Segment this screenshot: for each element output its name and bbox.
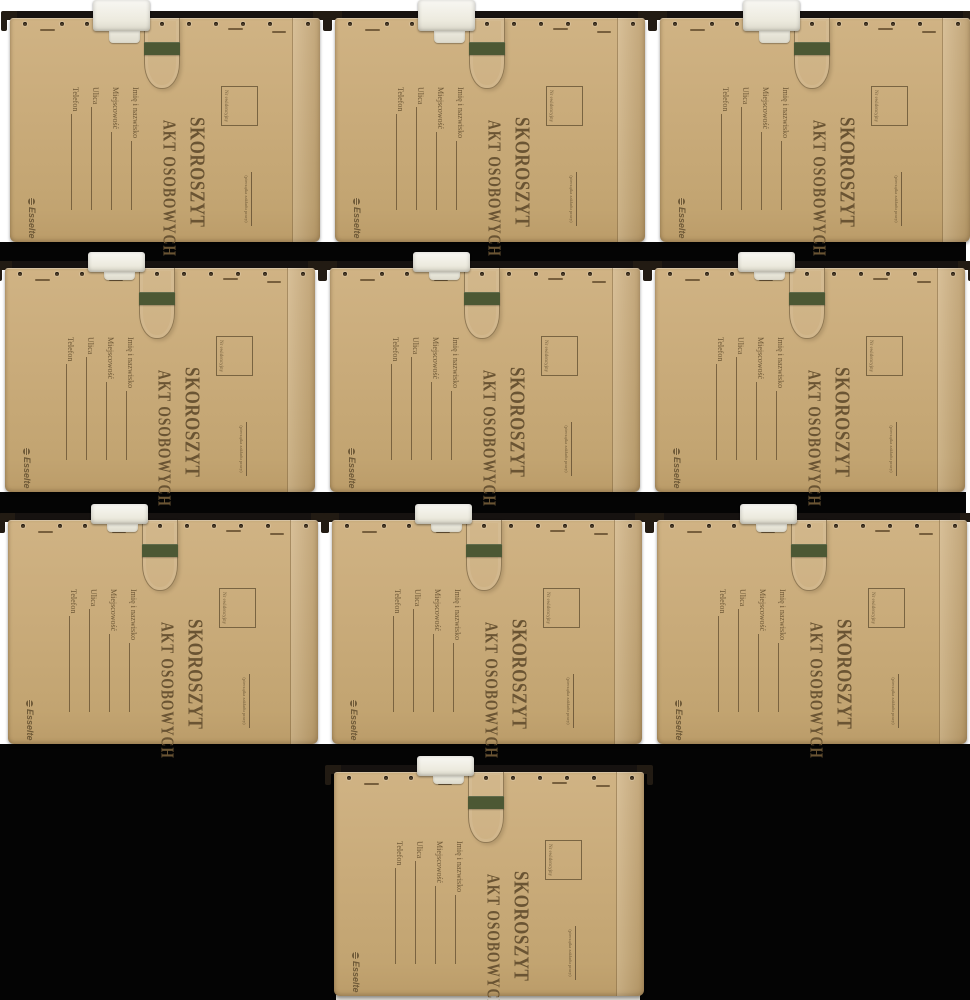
- rivet: [182, 272, 186, 276]
- brand-logo: Esselte: [27, 198, 37, 239]
- brand-logo: Esselte: [22, 448, 32, 489]
- form-field-label: Miejscowość: [435, 87, 445, 129]
- rivet: [834, 524, 838, 528]
- brand-logo: Esselte: [352, 198, 362, 239]
- product-collage: Nr ewidencyjny (pieczątka zakładu pracy)…: [0, 0, 970, 1000]
- rivet: [888, 524, 892, 528]
- rivet: [730, 272, 734, 276]
- form-field-label: Imię i nazwisko: [775, 337, 785, 388]
- form-field-label: Imię i nazwisko: [777, 589, 787, 640]
- rivet: [409, 776, 413, 780]
- form-field-label: Miejscowość: [105, 337, 115, 379]
- form-field-line: [69, 616, 71, 712]
- hanger-clip-tab: [434, 31, 465, 43]
- rivet: [214, 22, 218, 26]
- form-field-row: Imię i nazwisko: [775, 337, 787, 460]
- esselte-ball-icon: [351, 700, 358, 707]
- slit-mark: [40, 29, 55, 31]
- rivet: [212, 524, 216, 528]
- hanger-clip-tab: [431, 524, 462, 532]
- hanger-clip-tab: [433, 776, 464, 784]
- rivet: [187, 22, 191, 26]
- form-field-row: Telefon: [390, 337, 402, 460]
- form-field-row: Telefon: [395, 87, 407, 210]
- folder-body: Nr ewidencyjny (pieczątka zakładu pracy)…: [660, 18, 970, 242]
- hanging-folder: Nr ewidencyjny (pieczątka zakładu pracy)…: [10, 0, 320, 244]
- slit-mark: [267, 281, 281, 283]
- brand-logo: Esselte: [674, 700, 684, 741]
- hanger-clip: [415, 504, 472, 524]
- form-field-line: [431, 382, 433, 460]
- form-field-row: Miejscowość: [435, 87, 447, 210]
- form-field-label: Telefon: [720, 87, 730, 111]
- form-field-row: Imię i nazwisko: [780, 87, 792, 210]
- form-field-label: Telefon: [392, 589, 402, 613]
- printed-face: Nr ewidencyjny (pieczątka zakładu pracy)…: [330, 268, 640, 492]
- form-field-label: Imię i nazwisko: [130, 87, 140, 138]
- rivet: [538, 776, 542, 780]
- brand-logo: Esselte: [672, 448, 682, 489]
- form-field-row: Ulica: [735, 337, 747, 460]
- hanger-clip-tab: [109, 31, 140, 43]
- form-field-line: [396, 114, 398, 210]
- form-field-label: Ulica: [88, 589, 98, 606]
- rivet: [915, 524, 919, 528]
- hanger-clip-tab: [104, 272, 135, 280]
- form-field-row: Ulica: [88, 589, 100, 712]
- rivet: [18, 272, 22, 276]
- folder-body: Nr ewidencyjny (pieczątka zakładu pracy)…: [5, 268, 315, 492]
- hanger-clip-tab: [429, 272, 460, 280]
- form-field-label: Miejscowość: [757, 589, 767, 631]
- printed-face: Nr ewidencyjny (pieczątka zakładu pracy)…: [655, 268, 965, 492]
- form-field-line: [778, 643, 780, 712]
- rivet: [239, 524, 243, 528]
- form-field-label: Telefon: [390, 337, 400, 361]
- form-fields: Imię i nazwiskoMiejscowośćUlicaTelefon: [332, 520, 642, 744]
- form-field-label: Miejscowość: [755, 337, 765, 379]
- form-field-label: Ulica: [737, 589, 747, 606]
- hanger-clip: [88, 252, 145, 272]
- form-field-line: [393, 616, 395, 712]
- form-field-line: [761, 132, 763, 210]
- hanging-folder: Nr ewidencyjny (pieczątka zakładu pracy)…: [330, 250, 640, 494]
- form-field-line: [455, 895, 457, 964]
- rivet: [407, 524, 411, 528]
- form-field-row: Ulica: [740, 87, 752, 210]
- brand-name: Esselte: [25, 709, 35, 741]
- rivet: [345, 524, 349, 528]
- form-field-label: Telefon: [68, 589, 78, 613]
- slit-mark: [272, 31, 286, 33]
- folder-body: Nr ewidencyjny (pieczątka zakładu pracy)…: [8, 520, 318, 744]
- form-fields: Imię i nazwiskoMiejscowośćUlicaTelefon: [334, 772, 644, 996]
- rivet: [886, 272, 890, 276]
- rivet: [590, 524, 594, 528]
- rivet: [55, 272, 59, 276]
- form-field-row: Ulica: [415, 87, 427, 210]
- hanger-clip: [740, 504, 797, 524]
- rivet: [861, 524, 865, 528]
- form-field-label: Imię i nazwisko: [454, 841, 464, 892]
- rivet: [673, 22, 677, 26]
- folder-body: Nr ewidencyjny (pieczątka zakładu pracy)…: [657, 520, 967, 744]
- brand-logo: Esselte: [351, 952, 361, 993]
- form-fields: Imię i nazwiskoMiejscowośćUlicaTelefon: [5, 268, 315, 492]
- rivet: [382, 524, 386, 528]
- rivet: [859, 272, 863, 276]
- form-field-label: Miejscowość: [430, 337, 440, 379]
- form-field-row: Ulica: [737, 589, 749, 712]
- form-field-label: Telefon: [70, 87, 80, 111]
- form-field-row: Miejscowość: [430, 337, 442, 460]
- form-fields: Imię i nazwiskoMiejscowośćUlicaTelefon: [330, 268, 640, 492]
- slit-mark: [270, 533, 284, 535]
- esselte-ball-icon: [29, 198, 36, 205]
- rivet: [951, 272, 955, 276]
- form-field-line: [756, 382, 758, 460]
- rivet: [480, 272, 484, 276]
- form-field-line: [129, 643, 131, 712]
- slit-mark: [35, 279, 50, 281]
- hanger-clip-tab: [754, 272, 785, 280]
- rivet: [266, 524, 270, 528]
- rivet: [482, 524, 486, 528]
- form-field-line: [776, 391, 778, 460]
- esselte-ball-icon: [679, 198, 686, 205]
- form-field-row: Imię i nazwisko: [452, 589, 464, 712]
- rivet: [507, 272, 511, 276]
- form-field-label: Ulica: [735, 337, 745, 354]
- slit-mark: [917, 281, 931, 283]
- esselte-ball-icon: [674, 448, 681, 455]
- rivet: [236, 272, 240, 276]
- hanging-folder: Nr ewidencyjny (pieczątka zakładu pracy)…: [334, 754, 644, 998]
- form-fields: Imię i nazwiskoMiejscowośćUlicaTelefon: [655, 268, 965, 492]
- form-field-line: [111, 132, 113, 210]
- form-field-row: Ulica: [412, 589, 424, 712]
- brand-name: Esselte: [27, 207, 37, 239]
- form-field-line: [86, 357, 88, 460]
- form-field-row: Miejscowość: [757, 589, 769, 712]
- form-field-row: Telefon: [394, 841, 406, 964]
- slit-mark: [919, 533, 933, 535]
- hanger-clip: [93, 0, 150, 31]
- form-field-label: Ulica: [410, 337, 420, 354]
- rivet: [410, 22, 414, 26]
- rivet: [563, 524, 567, 528]
- rivet: [384, 776, 388, 780]
- form-field-row: Telefon: [65, 337, 77, 460]
- slit-mark: [553, 28, 568, 30]
- printed-face: Nr ewidencyjny (pieczątka zakładu pracy)…: [334, 772, 644, 996]
- form-field-line: [741, 107, 743, 210]
- form-field-label: Miejscowość: [108, 589, 118, 631]
- form-field-row: Imię i nazwisko: [130, 87, 142, 210]
- esselte-ball-icon: [354, 198, 361, 205]
- printed-face: Nr ewidencyjny (pieczątka zakładu pracy)…: [10, 18, 320, 242]
- form-field-line: [738, 609, 740, 712]
- rivet: [85, 22, 89, 26]
- form-field-row: Miejscowość: [108, 589, 120, 712]
- rivet: [60, 22, 64, 26]
- esselte-ball-icon: [27, 700, 34, 707]
- form-field-line: [758, 634, 760, 712]
- slit-mark: [552, 782, 567, 784]
- rivet: [155, 272, 159, 276]
- form-field-row: Miejscowość: [110, 87, 122, 210]
- rivet: [509, 524, 513, 528]
- brand-name: Esselte: [677, 207, 687, 239]
- rivet: [566, 22, 570, 26]
- hanger-clip: [738, 252, 795, 272]
- slit-mark: [875, 530, 890, 532]
- rivet: [268, 22, 272, 26]
- hanger-clip-tab: [759, 31, 790, 43]
- form-field-row: Imię i nazwisko: [777, 589, 789, 712]
- hanging-folder: Nr ewidencyjny (pieczątka zakładu pracy)…: [655, 250, 965, 494]
- rivet: [805, 272, 809, 276]
- rivet: [588, 272, 592, 276]
- form-field-line: [453, 643, 455, 712]
- form-field-label: Ulica: [90, 87, 100, 104]
- form-field-line: [451, 391, 453, 460]
- form-field-row: Miejscowość: [434, 841, 446, 964]
- hanger-clip: [413, 252, 470, 272]
- rivet: [343, 272, 347, 276]
- form-fields: Imię i nazwiskoMiejscowośćUlicaTelefon: [8, 520, 318, 744]
- slit-mark: [594, 533, 608, 535]
- form-field-line: [71, 114, 73, 210]
- rivet: [592, 776, 596, 780]
- form-field-line: [391, 364, 393, 460]
- hanging-folder: Nr ewidencyjny (pieczątka zakładu pracy)…: [5, 250, 315, 494]
- form-field-row: Miejscowość: [432, 589, 444, 712]
- rivet: [209, 272, 213, 276]
- folder-body: Nr ewidencyjny (pieczątka zakładu pracy)…: [332, 520, 642, 744]
- form-field-row: Imię i nazwisko: [128, 589, 140, 712]
- rivet: [561, 272, 565, 276]
- folder-body: Nr ewidencyjny (pieczątka zakładu pracy)…: [335, 18, 645, 242]
- form-field-label: Telefon: [395, 87, 405, 111]
- form-field-line: [721, 114, 723, 210]
- rivet: [807, 524, 811, 528]
- brand-name: Esselte: [351, 961, 361, 993]
- folder-body: Nr ewidencyjny (pieczątka zakładu pracy)…: [334, 772, 644, 996]
- rivet: [626, 272, 630, 276]
- rivet: [953, 524, 957, 528]
- rivet: [185, 524, 189, 528]
- slit-mark: [685, 279, 700, 281]
- slit-mark: [226, 530, 241, 532]
- form-field-row: Ulica: [85, 337, 97, 460]
- slit-mark: [38, 531, 53, 533]
- form-field-row: Ulica: [90, 87, 102, 210]
- form-field-row: Miejscowość: [760, 87, 772, 210]
- form-field-label: Telefon: [717, 589, 727, 613]
- folder-body: Nr ewidencyjny (pieczątka zakładu pracy)…: [655, 268, 965, 492]
- rivet: [668, 272, 672, 276]
- hanger-clip: [417, 756, 474, 776]
- form-field-row: Miejscowość: [755, 337, 767, 460]
- rivet: [241, 22, 245, 26]
- esselte-ball-icon: [349, 448, 356, 455]
- hanger-clip-tab: [756, 524, 787, 532]
- form-field-label: Telefon: [394, 841, 404, 865]
- brand-logo: Esselte: [677, 198, 687, 239]
- rivet: [301, 272, 305, 276]
- rivet: [891, 22, 895, 26]
- form-field-row: Miejscowość: [105, 337, 117, 460]
- form-field-line: [91, 107, 93, 210]
- rivet: [956, 22, 960, 26]
- hanger-clip: [418, 0, 475, 31]
- rivet: [732, 524, 736, 528]
- slit-mark: [550, 530, 565, 532]
- rivet: [710, 22, 714, 26]
- form-field-row: Imię i nazwisko: [125, 337, 137, 460]
- form-field-line: [456, 141, 458, 210]
- form-field-label: Telefon: [65, 337, 75, 361]
- rivet: [735, 22, 739, 26]
- esselte-ball-icon: [24, 448, 31, 455]
- form-field-row: Telefon: [717, 589, 729, 712]
- printed-face: Nr ewidencyjny (pieczątka zakładu pracy)…: [660, 18, 970, 242]
- brand-name: Esselte: [352, 207, 362, 239]
- form-field-line: [736, 357, 738, 460]
- slit-mark: [365, 29, 380, 31]
- form-field-line: [716, 364, 718, 460]
- form-field-line: [106, 382, 108, 460]
- rivet: [593, 22, 597, 26]
- printed-face: Nr ewidencyjny (pieczątka zakładu pracy)…: [5, 268, 315, 492]
- form-field-line: [415, 861, 417, 964]
- brand-logo: Esselte: [25, 700, 35, 741]
- form-field-line: [718, 616, 720, 712]
- form-field-line: [126, 391, 128, 460]
- form-field-row: Ulica: [410, 337, 422, 460]
- rivet: [158, 524, 162, 528]
- hanging-folder: Nr ewidencyjny (pieczątka zakładu pracy)…: [660, 0, 970, 244]
- rivet: [832, 272, 836, 276]
- form-field-label: Miejscowość: [760, 87, 770, 129]
- brand-name: Esselte: [347, 457, 357, 489]
- brand-name: Esselte: [349, 709, 359, 741]
- rivet: [405, 272, 409, 276]
- rivet: [630, 776, 634, 780]
- hanger-clip-tab: [107, 524, 138, 532]
- rivet: [536, 524, 540, 528]
- slit-mark: [690, 29, 705, 31]
- form-field-row: Telefon: [392, 589, 404, 712]
- rivet: [511, 776, 515, 780]
- folder-body: Nr ewidencyjny (pieczątka zakładu pracy)…: [10, 18, 320, 242]
- printed-face: Nr ewidencyjny (pieczątka zakładu pracy)…: [335, 18, 645, 242]
- form-field-label: Miejscowość: [434, 841, 444, 883]
- form-field-line: [89, 609, 91, 712]
- form-field-line: [131, 141, 133, 210]
- printed-face: Nr ewidencyjny (pieczątka zakładu pracy)…: [8, 520, 318, 744]
- rivet: [534, 272, 538, 276]
- rivet: [512, 22, 516, 26]
- hanging-folder: Nr ewidencyjny (pieczątka zakładu pracy)…: [335, 0, 645, 244]
- form-field-label: Imię i nazwisko: [128, 589, 138, 640]
- rivet: [628, 524, 632, 528]
- rivet: [306, 22, 310, 26]
- rivet: [670, 524, 674, 528]
- form-field-label: Imię i nazwisko: [780, 87, 790, 138]
- brand-name: Esselte: [22, 457, 32, 489]
- form-field-label: Ulica: [740, 87, 750, 104]
- form-fields: Imię i nazwiskoMiejscowośćUlicaTelefon: [657, 520, 967, 744]
- hanging-folder: Nr ewidencyjny (pieczątka zakładu pracy)…: [657, 502, 967, 746]
- rivet: [23, 22, 27, 26]
- form-field-line: [66, 364, 68, 460]
- form-field-row: Telefon: [720, 87, 732, 210]
- form-field-row: Telefon: [70, 87, 82, 210]
- form-field-row: Imię i nazwisko: [454, 841, 466, 964]
- form-field-label: Ulica: [415, 87, 425, 104]
- form-field-row: Ulica: [414, 841, 426, 964]
- form-field-line: [416, 107, 418, 210]
- rivet: [347, 776, 351, 780]
- hanger-clip: [743, 0, 800, 31]
- form-field-line: [413, 609, 415, 712]
- form-field-line: [411, 357, 413, 460]
- slit-mark: [360, 279, 375, 281]
- slit-mark: [548, 278, 563, 280]
- rivet: [348, 22, 352, 26]
- form-field-line: [435, 886, 437, 964]
- slit-mark: [687, 531, 702, 533]
- form-field-label: Imię i nazwisko: [450, 337, 460, 388]
- form-field-label: Imię i nazwisko: [452, 589, 462, 640]
- slit-mark: [878, 28, 893, 30]
- rivet: [83, 524, 87, 528]
- rivet: [263, 272, 267, 276]
- esselte-ball-icon: [676, 700, 683, 707]
- slit-mark: [223, 278, 238, 280]
- slit-mark: [596, 785, 610, 787]
- rivet: [80, 272, 84, 276]
- slit-mark: [228, 28, 243, 30]
- form-field-line: [109, 634, 111, 712]
- form-field-row: Imię i nazwisko: [450, 337, 462, 460]
- rivet: [707, 524, 711, 528]
- slit-mark: [873, 278, 888, 280]
- hanging-folder: Nr ewidencyjny (pieczątka zakładu pracy)…: [332, 502, 642, 746]
- rivet: [385, 22, 389, 26]
- brand-name: Esselte: [674, 709, 684, 741]
- slit-mark: [362, 531, 377, 533]
- form-fields: Imię i nazwiskoMiejscowośćUlicaTelefon: [660, 18, 970, 242]
- esselte-ball-icon: [353, 952, 360, 959]
- form-fields: Imię i nazwiskoMiejscowośćUlicaTelefon: [10, 18, 320, 242]
- form-field-row: Imię i nazwisko: [455, 87, 467, 210]
- hanger-clip: [91, 504, 148, 524]
- form-field-line: [781, 141, 783, 210]
- brand-name: Esselte: [672, 457, 682, 489]
- form-field-row: Telefon: [68, 589, 80, 712]
- form-field-label: Miejscowość: [432, 589, 442, 631]
- form-field-label: Imię i nazwisko: [455, 87, 465, 138]
- rivet: [485, 22, 489, 26]
- rivet: [918, 22, 922, 26]
- form-field-label: Ulica: [412, 589, 422, 606]
- rivet: [810, 22, 814, 26]
- printed-face: Nr ewidencyjny (pieczątka zakładu pracy)…: [332, 520, 642, 744]
- form-fields: Imię i nazwiskoMiejscowośćUlicaTelefon: [335, 18, 645, 242]
